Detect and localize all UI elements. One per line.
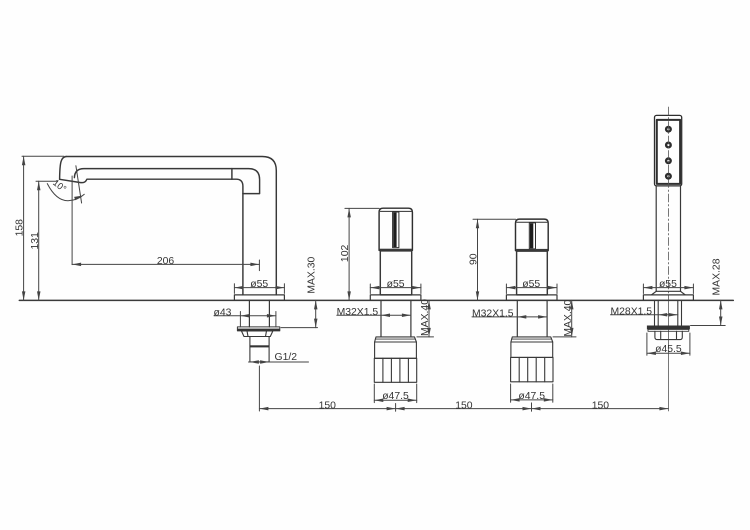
svg-text:ø55: ø55 (250, 279, 268, 290)
svg-text:150: 150 (592, 401, 610, 412)
svg-text:ø55: ø55 (659, 279, 677, 290)
svg-text:158: 158 (14, 219, 25, 237)
svg-text:M28X1.5: M28X1.5 (611, 306, 653, 317)
svg-text:MAX.28: MAX.28 (712, 258, 723, 295)
svg-text:102: 102 (340, 245, 351, 263)
svg-text:ø47.5: ø47.5 (518, 391, 545, 402)
svg-text:ø55: ø55 (522, 279, 540, 290)
svg-text:MAX.30: MAX.30 (307, 257, 318, 294)
svg-text:M32X1.5: M32X1.5 (472, 309, 514, 320)
svg-text:MAX.40: MAX.40 (563, 300, 574, 337)
svg-text:G1/2: G1/2 (275, 352, 298, 363)
svg-text:90: 90 (468, 253, 479, 265)
svg-text:131: 131 (30, 232, 41, 250)
svg-text:M32X1.5: M32X1.5 (337, 307, 379, 318)
svg-text:ø55: ø55 (387, 279, 405, 290)
svg-text:ø43: ø43 (214, 307, 232, 318)
svg-text:MAX.40: MAX.40 (420, 299, 431, 336)
svg-text:ø47.5: ø47.5 (382, 391, 409, 402)
svg-text:150: 150 (319, 401, 337, 412)
svg-text:206: 206 (157, 256, 175, 267)
svg-text:ø45.5: ø45.5 (655, 344, 682, 355)
svg-text:150: 150 (455, 401, 473, 412)
